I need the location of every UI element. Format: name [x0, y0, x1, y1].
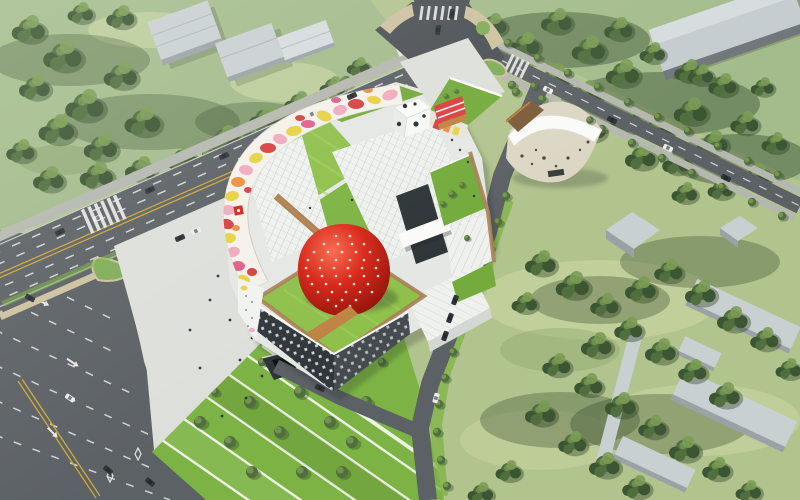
aerial-render-image: [0, 0, 800, 500]
light-haze-overlay: [0, 0, 800, 500]
rendering-canvas: [0, 0, 800, 500]
